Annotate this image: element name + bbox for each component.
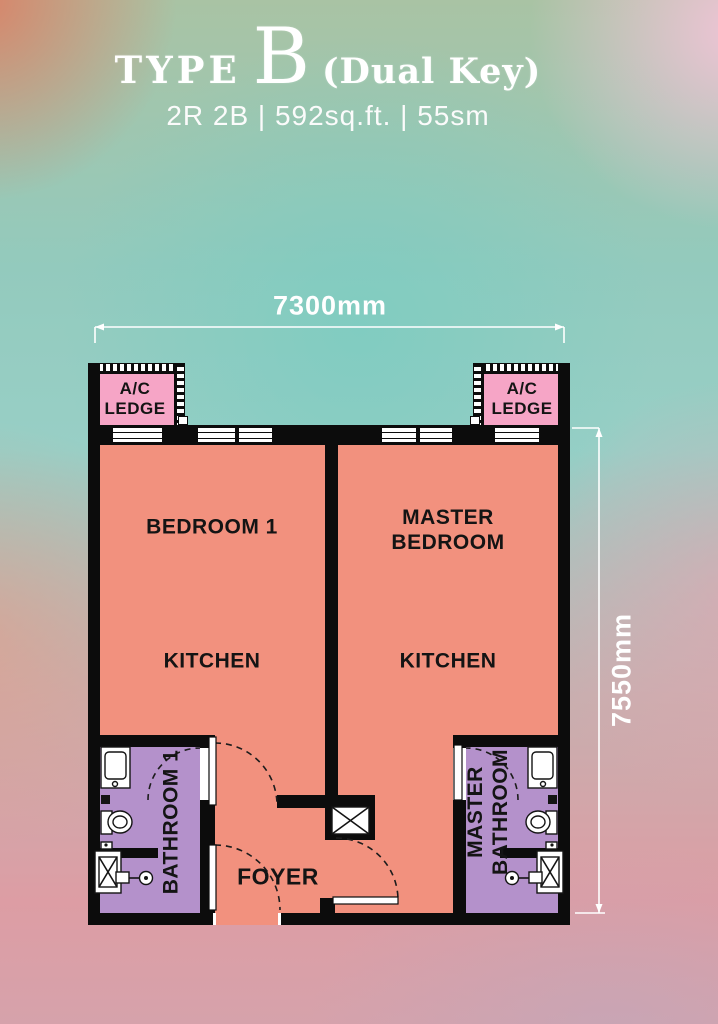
plan-title: TYPE B (Dual Key) <box>115 28 542 92</box>
dimension-height-line <box>572 428 605 913</box>
wall-bathroom1-shower-stub <box>100 848 158 858</box>
plan-type-label: TYPE <box>115 48 241 92</box>
bathroom1-area <box>100 747 200 913</box>
master-bathroom-label: MASTER BATHROOM <box>464 727 514 897</box>
plan-type-suffix: (Dual Key) <box>322 51 541 92</box>
wall-center-divider <box>325 425 338 795</box>
ac-ledge-right-label: A/C LEDGE <box>487 379 557 419</box>
wall-left <box>88 363 100 925</box>
dimension-width-label: 7300mm <box>273 291 387 322</box>
wall-entry-stub <box>320 898 335 913</box>
wall-bottom <box>88 913 570 925</box>
window-master-right <box>494 427 540 443</box>
wall-utility-box <box>325 795 375 840</box>
plan-specs: 2R 2B | 592sq.ft. | 55sm <box>115 100 542 132</box>
bathroom1-label: BATHROOM 1 <box>160 750 185 895</box>
window-bedroom1-mid2 <box>238 427 273 443</box>
window-master-mid1 <box>381 427 417 443</box>
window-master-mid2 <box>419 427 453 443</box>
ac-ledge-right-hatch-top <box>482 363 563 372</box>
entrance-jamb-right <box>278 913 281 925</box>
bedroom1-label: BEDROOM 1 <box>146 516 278 541</box>
ledge-right-notch <box>470 416 480 425</box>
dimension-width-line <box>95 324 564 344</box>
dimension-height-label: 7550mm <box>607 613 638 727</box>
ledge-left-notch <box>178 416 188 425</box>
wall-bathroom1-right-upper <box>200 735 215 748</box>
wall-bathroom1-right-lower <box>200 800 215 913</box>
kitchen-left-label: KITCHEN <box>164 650 261 675</box>
plan-header: TYPE B (Dual Key) 2R 2B | 592sq.ft. | 55… <box>115 28 542 132</box>
ac-ledge-left-label: A/C LEDGE <box>100 379 170 419</box>
kitchen-right-label: KITCHEN <box>400 650 497 675</box>
wall-right <box>558 363 570 925</box>
window-bedroom1-left <box>112 427 163 443</box>
window-bedroom1-mid1 <box>197 427 236 443</box>
ac-ledge-left-hatch-top <box>95 363 176 372</box>
entrance-opening <box>216 913 278 925</box>
floorplan-page: TYPE B (Dual Key) 2R 2B | 592sq.ft. | 55… <box>0 0 718 1024</box>
foyer-label: FOYER <box>237 863 319 890</box>
wall-foyer-stub <box>277 795 325 808</box>
plan-type-letter: B <box>253 28 310 87</box>
master-bedroom-label: MASTER BEDROOM <box>383 506 513 556</box>
wall-bathroom1-top <box>88 735 215 747</box>
bathroom1-door-opening <box>200 748 215 800</box>
entrance-jamb-left <box>213 913 216 925</box>
